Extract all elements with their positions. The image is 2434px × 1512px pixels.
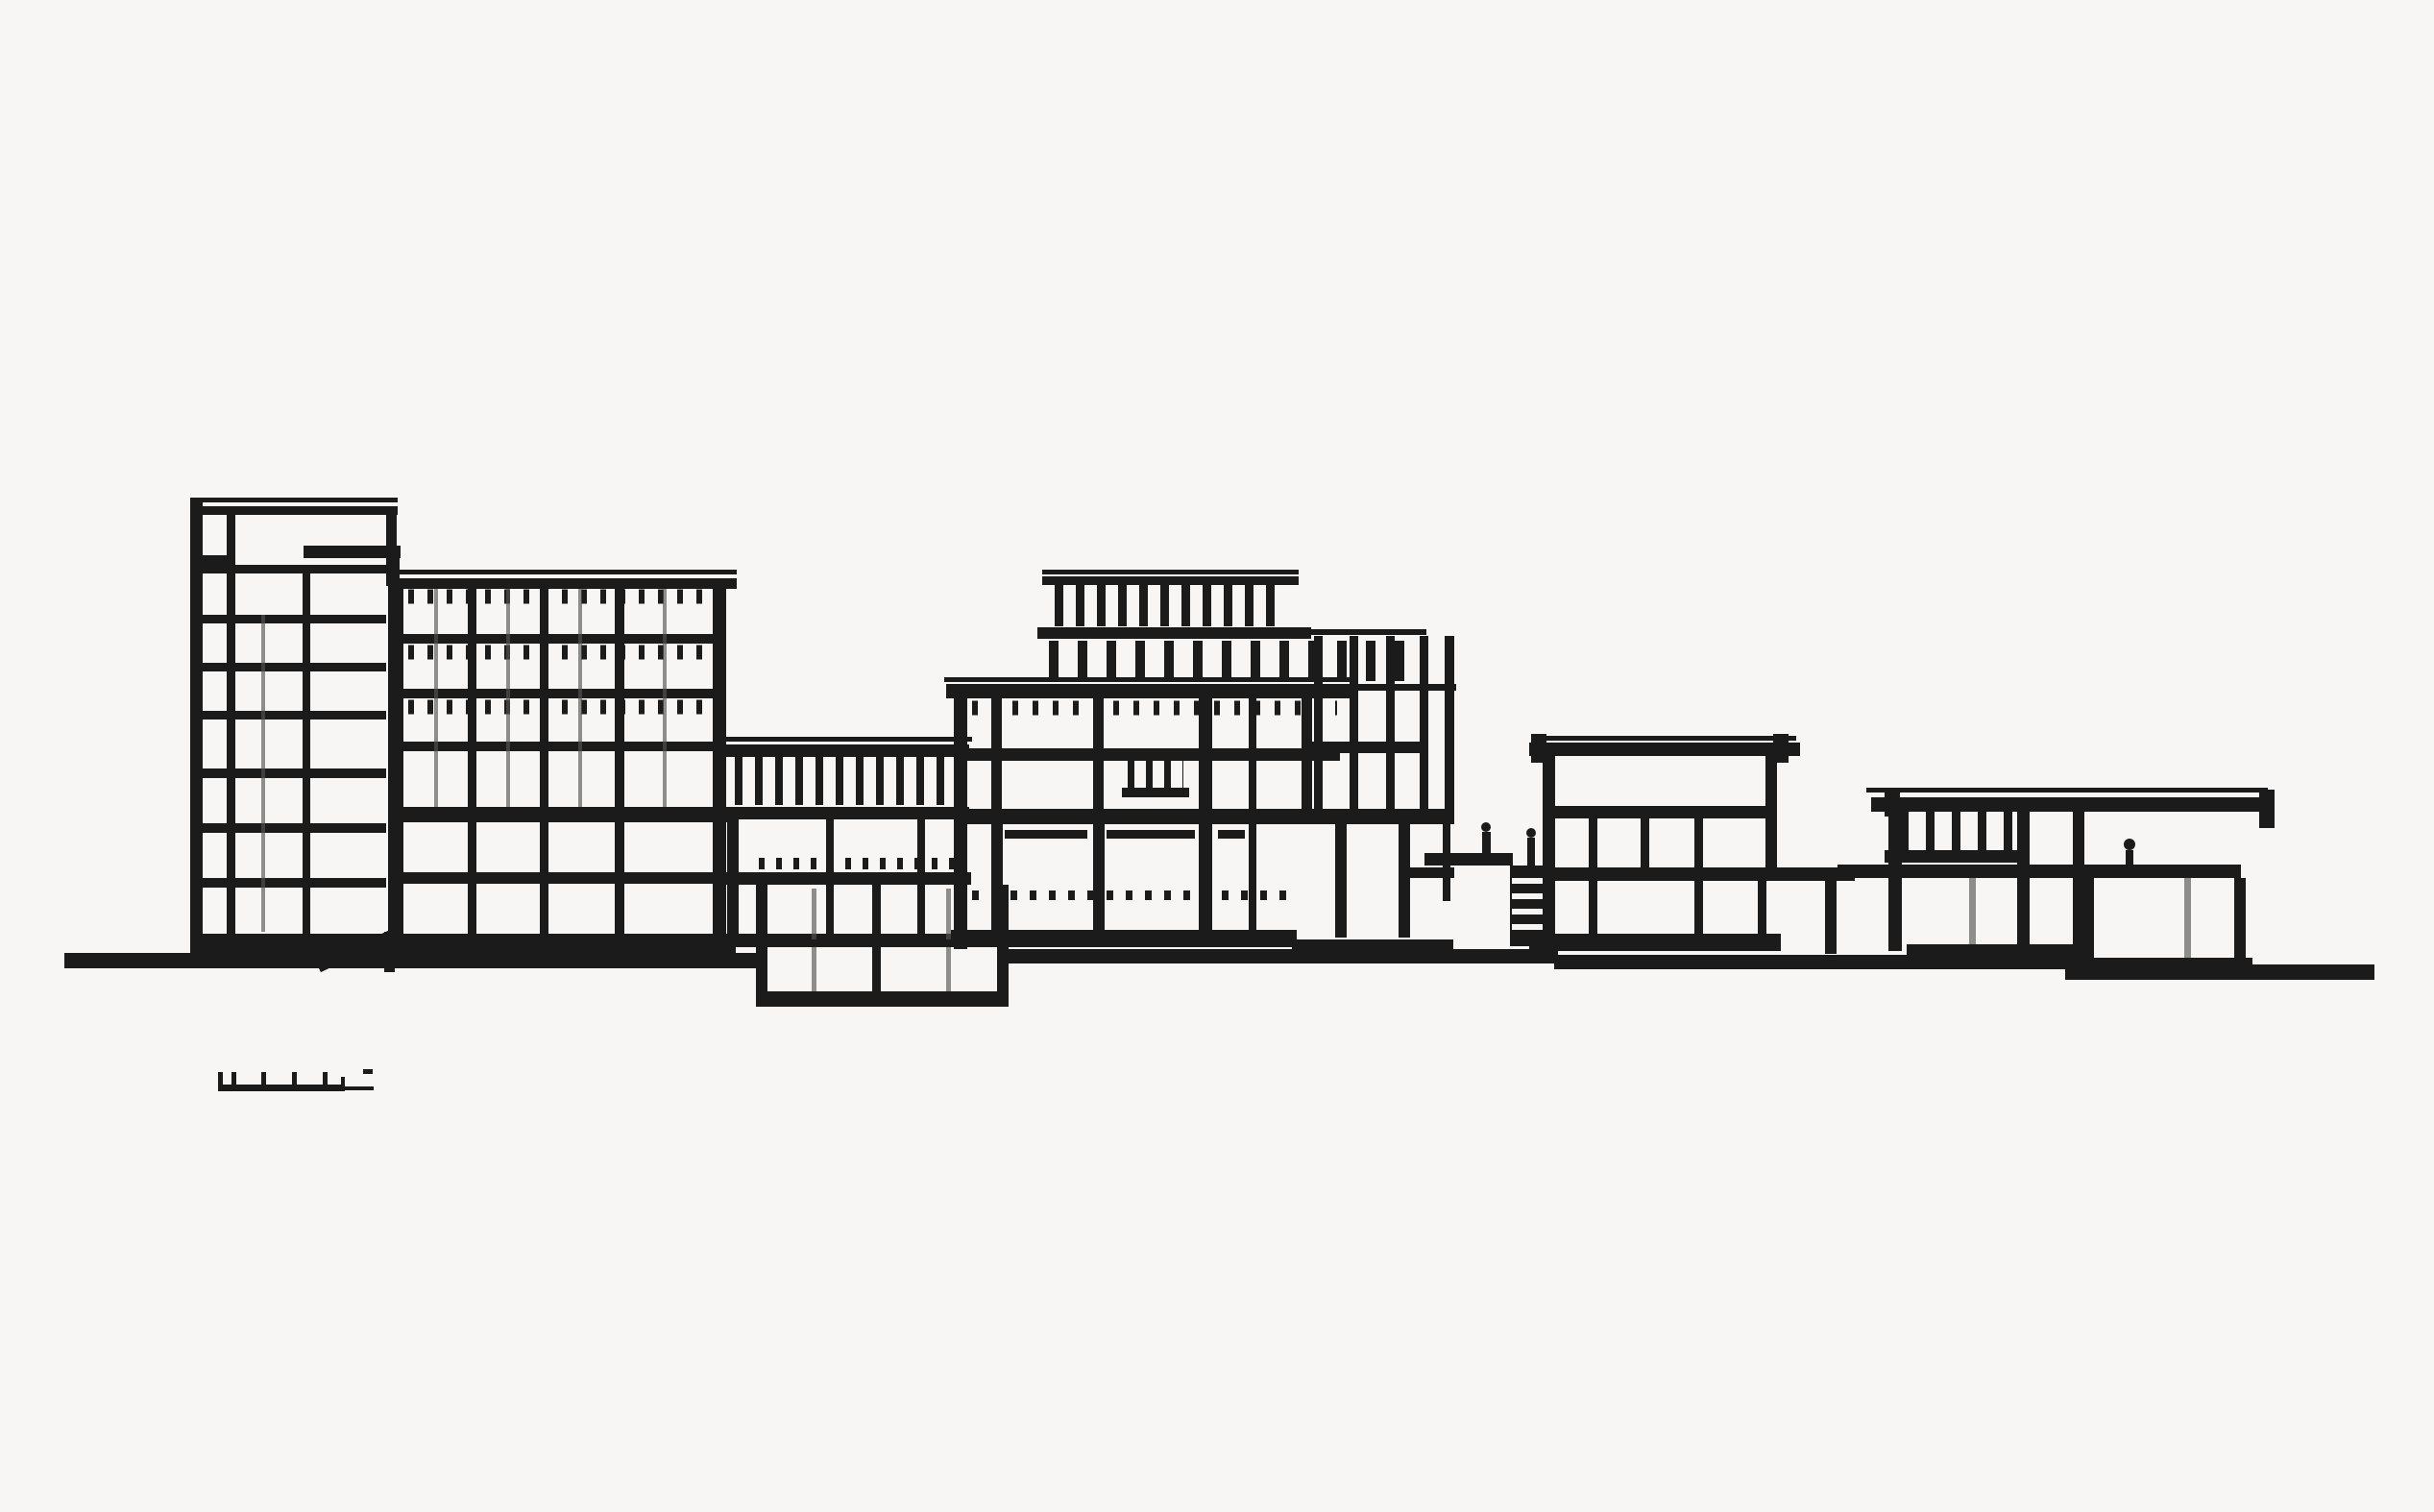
section-drawing: [0, 0, 2434, 1512]
tall-slab-block: [190, 498, 401, 957]
basement-slab: [756, 991, 1009, 1007]
two-story-pavilion: [1529, 734, 1800, 951]
glazed-tower: [1292, 636, 1456, 955]
scale-tick: [292, 1072, 297, 1086]
grid-block: [388, 570, 737, 953]
wall: [190, 498, 203, 957]
roof-penthouse: [1037, 570, 1426, 661]
scale-tick: [218, 1072, 223, 1086]
column: [388, 580, 403, 951]
vent-post: [2126, 850, 2133, 867]
scale-tick: [261, 1072, 266, 1086]
central-block: [944, 570, 1456, 955]
vent-post: [1527, 838, 1535, 866]
vent-post: [1482, 832, 1491, 855]
scale-tick: [231, 1072, 236, 1086]
scale-bar: [218, 1069, 374, 1091]
right-pavilion: [1838, 788, 2275, 972]
scale-tick: [323, 1072, 328, 1086]
walkway-column: [1825, 881, 1837, 954]
walkway-slab: [1555, 867, 1855, 881]
wall: [1543, 743, 1555, 946]
